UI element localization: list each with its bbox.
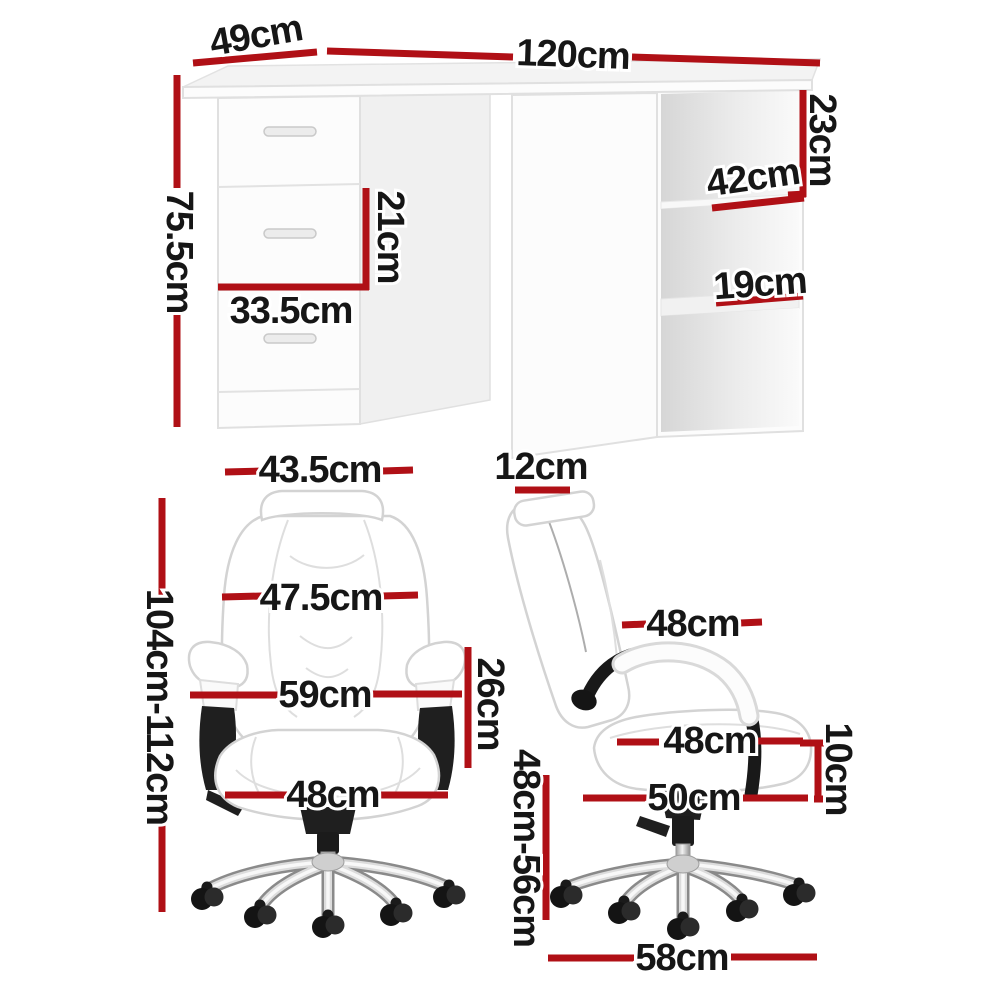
base-hub: [312, 853, 344, 871]
diagram-canvas: 49cm 120cm 75.5cm 21cm 33.5cm 23cm 42cm …: [0, 0, 1000, 1000]
side-back-width-label: 48cm: [646, 603, 739, 645]
chair-backrest: [222, 516, 429, 753]
desk-drawer-unit: [218, 93, 490, 428]
desk-height-label: 75.5cm: [158, 191, 200, 314]
dim-line-backwidth-left: [622, 624, 646, 625]
desk: [183, 59, 820, 458]
base-hub-side: [667, 855, 699, 873]
dim-line-backrest-left: [222, 596, 262, 597]
dim-line-backrest-right: [382, 595, 418, 596]
drawer-width-label: 33.5cm: [230, 290, 353, 332]
seat-lever-side[interactable]: [636, 816, 670, 837]
seat-depth-label: 48cm: [663, 720, 756, 762]
dim-line-desk-width-left: [327, 51, 513, 57]
drawer-unit-front: [218, 96, 360, 428]
chair-side-view: [507, 490, 815, 940]
dim-line-headrest-right: [382, 470, 413, 471]
caster-wheel: [244, 900, 277, 929]
drawer-handle[interactable]: [264, 334, 316, 343]
seat-height-range-label: 48cm-56cm: [505, 749, 547, 947]
back-thickness-label: 12cm: [494, 446, 587, 488]
chair-height-label: 104cm-112cm: [138, 589, 180, 825]
product-dimension-diagram: 49cm 120cm 75.5cm 21cm 33.5cm 23cm 42cm …: [0, 0, 1000, 1000]
armrest-span-label: 59cm: [278, 674, 371, 716]
seat-width-label: 48cm: [286, 774, 379, 816]
caster-wheel: [312, 910, 345, 939]
headrest-width-label: 43.5cm: [259, 449, 382, 491]
gas-lift-side: [672, 816, 694, 846]
seat-length-label: 50cm: [647, 777, 740, 819]
desk-width-label: 120cm: [516, 32, 631, 78]
desk-shelf-side-panel: [512, 93, 657, 458]
shelf-middle-height-label: 19cm: [712, 260, 808, 308]
drawer-handle[interactable]: [264, 127, 316, 136]
drawer-height-label: 21cm: [369, 190, 411, 283]
armrest-height-label: 26cm: [469, 657, 511, 750]
gas-lift: [317, 832, 339, 854]
base-width-label: 58cm: [635, 937, 728, 979]
seat-thickness-label: 10cm: [817, 722, 859, 815]
dim-line-headrest-left: [225, 471, 262, 472]
drawer-handle[interactable]: [264, 229, 316, 238]
caster-wheel: [667, 912, 700, 941]
shelf-top-height-label: 23cm: [801, 93, 843, 186]
backrest-width-label: 47.5cm: [260, 577, 383, 619]
shelf-compartment-bottom: [661, 308, 799, 432]
dim-line-backwidth-right: [740, 622, 762, 623]
